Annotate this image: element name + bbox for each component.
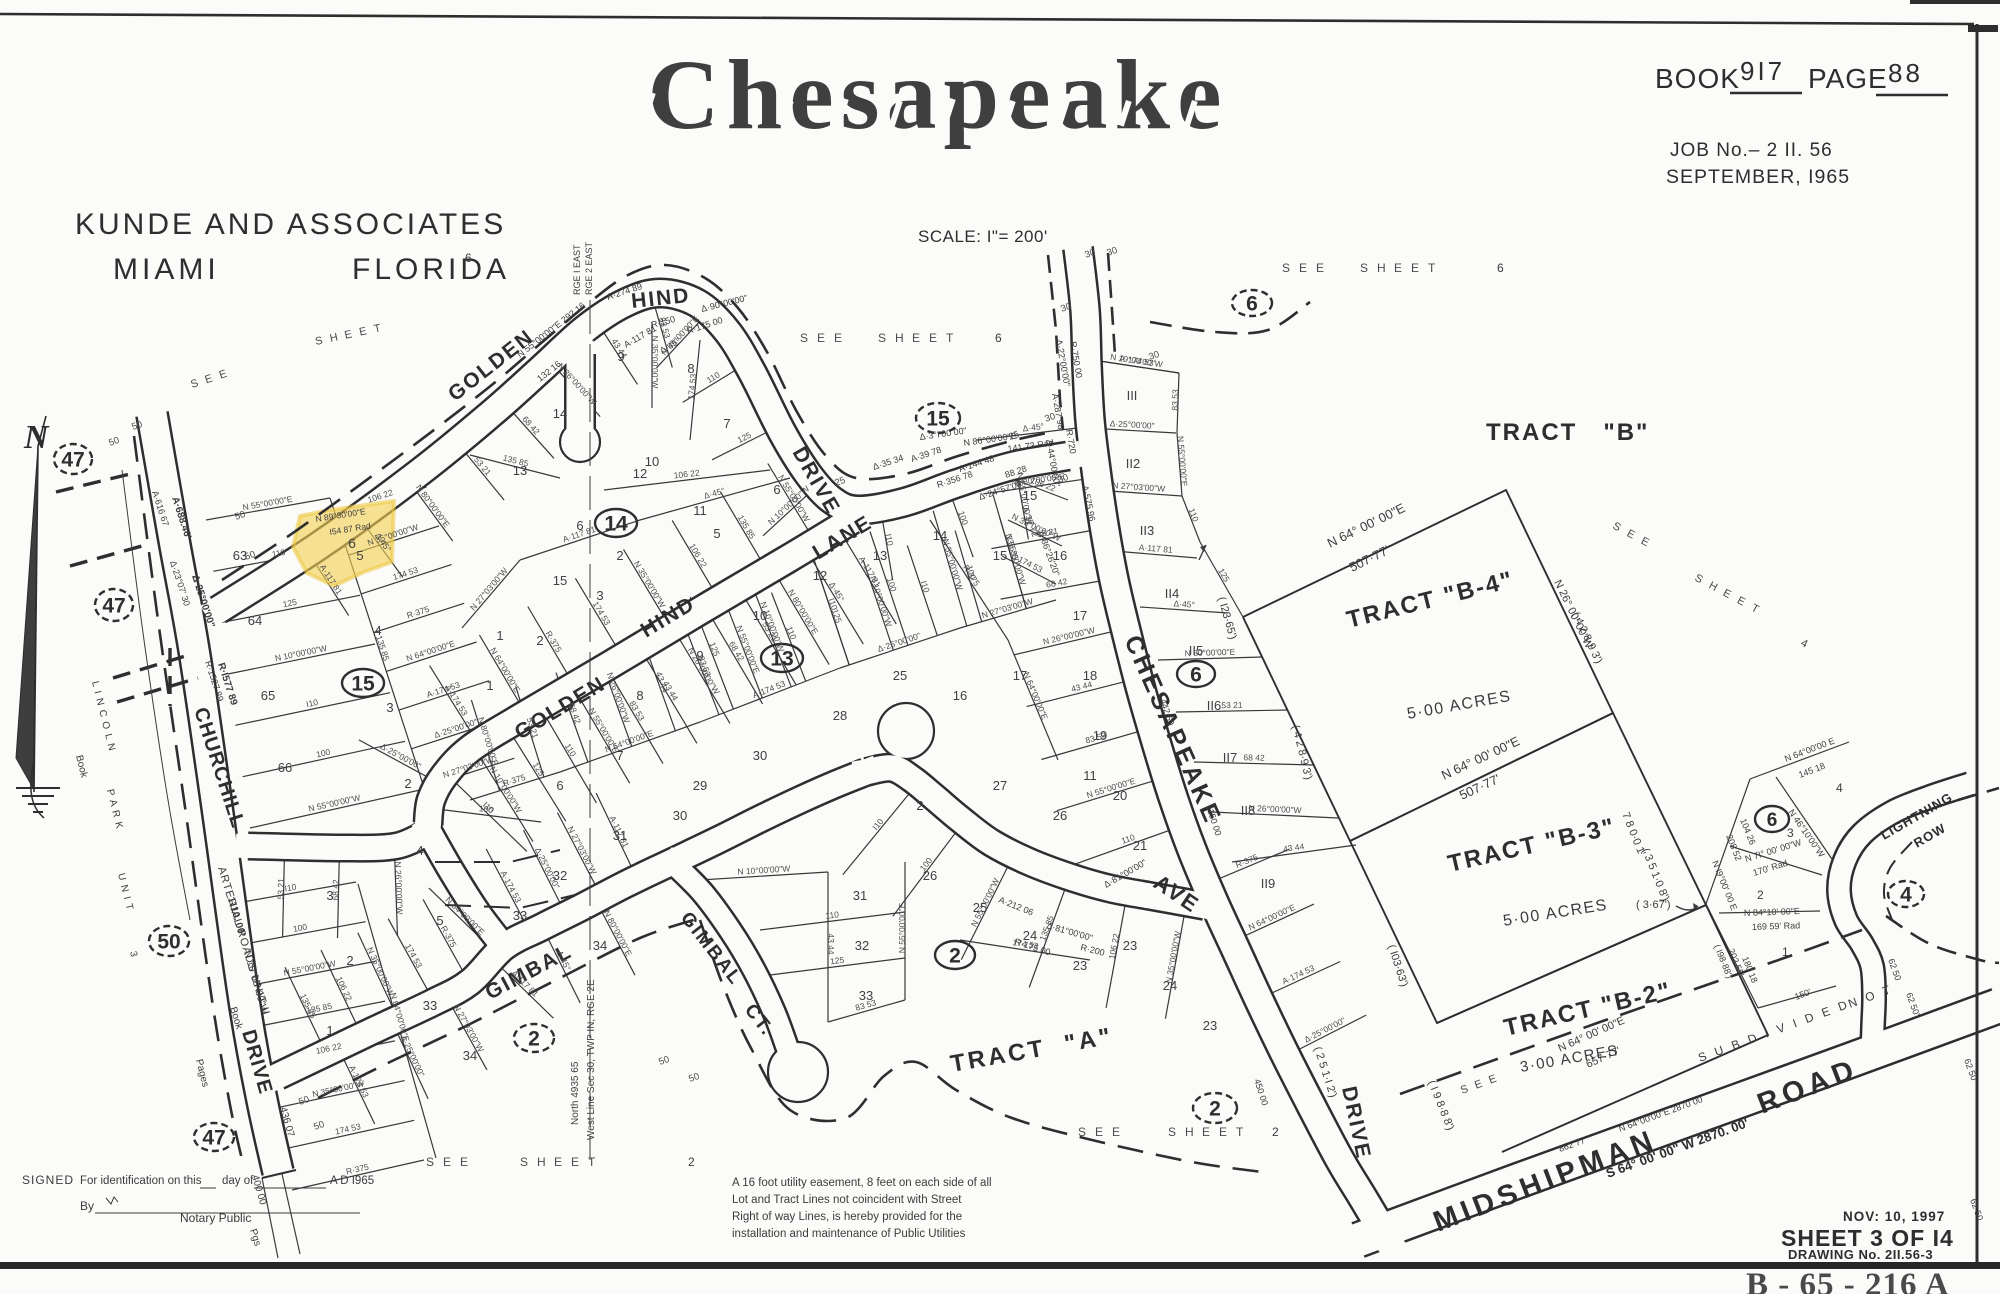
svg-text:34: 34 (463, 1048, 477, 1063)
svg-text:2: 2 (346, 953, 353, 968)
svg-text:15: 15 (1023, 488, 1037, 503)
svg-text:Lot and Tract Lines not c: Lot and Tract Lines not coincident with … (732, 1194, 962, 1206)
svg-text:RGE 2 EAST: RGE 2 EAST (584, 241, 594, 295)
svg-text:For identification on this: For identification on this (80, 1175, 202, 1187)
svg-text:II2: II2 (1126, 456, 1140, 471)
svg-text:Right of way Lines, is he: Right of way Lines, is hereby provided f… (732, 1211, 962, 1223)
svg-text:II9: II9 (1261, 876, 1275, 891)
svg-text:29: 29 (693, 778, 707, 793)
svg-text:3: 3 (326, 888, 333, 903)
svg-text:E: E (1112, 1125, 1120, 1139)
svg-text:6: 6 (576, 518, 583, 533)
svg-text:23: 23 (1123, 938, 1137, 953)
svg-text:16: 16 (953, 688, 967, 703)
svg-text:6: 6 (556, 778, 563, 793)
svg-text:SEPTEMBER, I965: SEPTEMBER, I965 (1666, 166, 1850, 188)
svg-text:H: H (895, 331, 904, 345)
svg-text:Chesapeake: Chesapeake (647, 39, 1228, 150)
svg-text:64: 64 (248, 613, 262, 628)
svg-text:E: E (817, 331, 825, 345)
svg-text:14: 14 (604, 513, 628, 536)
svg-text:E: E (912, 331, 920, 345)
svg-text:KUNDE AND ASSOCIATES: KUNDE AND ASSOCIATES (75, 208, 506, 241)
svg-text:2: 2 (1209, 1098, 1221, 1121)
svg-text:32: 32 (855, 938, 869, 953)
svg-text:DRAWING No. 2II.56-3: DRAWING No. 2II.56-3 (1788, 1247, 1933, 1262)
svg-text:1: 1 (486, 678, 493, 693)
svg-text:1: 1 (326, 1023, 333, 1038)
svg-text:B - 65 - 216 A: B - 65 - 216 A (1746, 1267, 1950, 1294)
svg-text:T: T (588, 1155, 596, 1169)
svg-text:34: 34 (593, 938, 607, 953)
svg-text:JOB No.– 2 II. 56: JOB No.– 2 II. 56 (1670, 140, 1833, 161)
svg-text:6: 6 (1497, 261, 1504, 275)
svg-text:T: T (1428, 261, 1436, 275)
svg-text:1: 1 (496, 628, 503, 643)
svg-text:4: 4 (1836, 781, 1843, 795)
svg-text:6: 6 (1246, 293, 1258, 316)
svg-text:18: 18 (1083, 668, 1097, 683)
svg-text:6: 6 (348, 535, 356, 551)
svg-text:RGE I EAST: RGE I EAST (572, 244, 582, 295)
svg-text:47: 47 (202, 1127, 225, 1150)
svg-text:N 84°10' 00"E: N 84°10' 00"E (1744, 906, 1800, 918)
svg-text:E: E (1394, 261, 1402, 275)
svg-text:19: 19 (1093, 728, 1107, 743)
svg-text:17: 17 (1073, 608, 1087, 623)
svg-text:S: S (1168, 1125, 1176, 1139)
svg-text:15: 15 (553, 573, 567, 588)
svg-text:7: 7 (723, 416, 730, 431)
svg-text:11: 11 (1083, 768, 1097, 783)
svg-text:MIAMI: MIAMI (113, 253, 220, 286)
svg-text:T: T (1236, 1125, 1244, 1139)
svg-text:20: 20 (1113, 788, 1127, 803)
svg-text:30: 30 (673, 808, 687, 823)
svg-text:E: E (1411, 261, 1419, 275)
svg-text:66: 66 (278, 760, 292, 775)
svg-text:H: H (1377, 261, 1386, 275)
svg-text:33: 33 (423, 998, 437, 1013)
svg-text:E: E (929, 331, 937, 345)
svg-text:A 16 foot utility easement: A 16 foot utility easement, 8 feet on ea… (732, 1177, 992, 1189)
svg-text:By: By (80, 1199, 94, 1213)
svg-text:15: 15 (926, 408, 950, 431)
svg-text:E: E (1219, 1125, 1227, 1139)
svg-text:I10: I10 (284, 882, 298, 894)
svg-text:14: 14 (933, 528, 947, 543)
svg-text:N 35°00'00"W: N 35°00'00"W (650, 336, 660, 389)
svg-text:N 55°00'00"E: N 55°00'00"E (897, 902, 907, 953)
svg-text:2: 2 (949, 945, 961, 968)
svg-text:2: 2 (688, 1155, 695, 1169)
svg-text:FLORIDA: FLORIDA (352, 253, 510, 286)
svg-text:SIGNED: SIGNED (22, 1173, 74, 1187)
svg-text:30: 30 (753, 748, 767, 763)
svg-text:2: 2 (528, 1028, 540, 1051)
svg-text:26: 26 (923, 868, 937, 883)
svg-text:installation and maintenance: installation and maintenance of Public U… (732, 1228, 966, 1240)
svg-text:17: 17 (1013, 668, 1027, 683)
svg-text:BOOK: BOOK (1655, 63, 1740, 94)
svg-text:II7: II7 (1223, 750, 1237, 765)
svg-text:6: 6 (1767, 810, 1778, 831)
svg-text:S: S (426, 1155, 434, 1169)
svg-text:2: 2 (536, 633, 543, 648)
svg-text:1: 1 (1782, 945, 1789, 959)
svg-text:II3: II3 (1140, 523, 1154, 538)
svg-text:2: 2 (916, 798, 923, 813)
svg-text:( 3·67'): ( 3·67') (1636, 899, 1671, 911)
svg-text:4: 4 (1900, 884, 1912, 907)
svg-text:N: N (23, 419, 50, 456)
svg-text:E: E (1095, 1125, 1103, 1139)
svg-text:32: 32 (553, 868, 567, 883)
svg-text:3: 3 (1787, 826, 1794, 840)
svg-text:8: 8 (687, 361, 694, 376)
svg-text:8: 8 (636, 688, 643, 703)
svg-text:PAGE: PAGE (1808, 63, 1888, 94)
svg-text:5: 5 (436, 913, 443, 928)
svg-text:3: 3 (596, 588, 603, 603)
svg-text:Notary Public: Notary Public (180, 1211, 251, 1225)
svg-text:N 26°00'00"W: N 26°00'00"W (393, 861, 405, 914)
svg-text:125: 125 (829, 955, 845, 967)
svg-text:33: 33 (513, 908, 527, 923)
svg-text:3: 3 (386, 700, 393, 715)
svg-text:4: 4 (374, 623, 381, 638)
svg-text:24: 24 (1163, 978, 1177, 993)
svg-text:12: 12 (813, 568, 827, 583)
svg-text:II6: II6 (1207, 698, 1221, 713)
svg-text:68 42: 68 42 (1243, 752, 1265, 763)
svg-text:E: E (443, 1155, 451, 1169)
svg-text:110: 110 (825, 909, 840, 921)
svg-text:day of: day of (222, 1175, 254, 1187)
svg-text:13: 13 (513, 463, 527, 478)
svg-text:T: T (946, 331, 954, 345)
svg-text:5: 5 (713, 526, 720, 541)
svg-text:16: 16 (1053, 548, 1067, 563)
svg-text:4: 4 (416, 843, 423, 858)
svg-text:E: E (571, 1155, 579, 1169)
svg-text:S: S (800, 331, 808, 345)
svg-text:S: S (1282, 261, 1290, 275)
svg-text:North 4935 65: North 4935 65 (570, 1061, 581, 1125)
svg-text:31: 31 (613, 828, 627, 843)
svg-text:E: E (1202, 1125, 1210, 1139)
svg-text:NOV: 10, 1997: NOV: 10, 1997 (1843, 1209, 1945, 1224)
svg-text:33: 33 (859, 988, 873, 1003)
svg-text:53 21: 53 21 (1221, 700, 1243, 710)
svg-text:E: E (460, 1155, 468, 1169)
svg-text:15: 15 (993, 548, 1007, 563)
svg-text:SCALE: I"= 200': SCALE: I"= 200' (918, 227, 1048, 246)
svg-text:6: 6 (1190, 664, 1202, 687)
svg-text:31: 31 (853, 888, 867, 903)
svg-text:West Line Sec 30, TWP IN,: West Line Sec 30, TWP IN, RGE 2E (586, 979, 597, 1140)
svg-text:II8: II8 (1241, 803, 1255, 818)
svg-text:E: E (1316, 261, 1324, 275)
svg-text:S: S (1078, 1125, 1086, 1139)
svg-text:H: H (537, 1155, 546, 1169)
svg-text:H: H (1185, 1125, 1194, 1139)
svg-text:7: 7 (616, 748, 623, 763)
svg-text:S: S (1360, 261, 1368, 275)
svg-text:I10: I10 (883, 533, 895, 547)
svg-text:A D I965: A D I965 (330, 1175, 374, 1187)
svg-text:E: E (1299, 261, 1307, 275)
svg-text:9: 9 (617, 349, 624, 364)
svg-text:10: 10 (753, 608, 767, 623)
svg-text:47: 47 (102, 595, 125, 618)
svg-text:65: 65 (261, 688, 275, 703)
svg-text:24: 24 (1023, 928, 1037, 943)
svg-text:53 21: 53 21 (275, 878, 285, 900)
svg-text:II4: II4 (1165, 586, 1179, 601)
svg-text:21: 21 (1133, 838, 1147, 853)
svg-text:83 53: 83 53 (1170, 389, 1181, 411)
svg-text:2: 2 (404, 776, 411, 791)
svg-text:25: 25 (893, 668, 907, 683)
svg-text:23: 23 (1073, 958, 1087, 973)
svg-text:6: 6 (465, 251, 472, 265)
svg-text:2: 2 (1757, 888, 1764, 902)
svg-text:III: III (1127, 388, 1138, 403)
svg-text:11: 11 (693, 503, 707, 518)
svg-text:43 44: 43 44 (826, 933, 836, 955)
svg-text:88: 88 (1888, 58, 1923, 88)
svg-text:E: E (834, 331, 842, 345)
svg-text:47: 47 (61, 449, 84, 472)
svg-text:5: 5 (356, 548, 363, 563)
svg-text:S: S (520, 1155, 528, 1169)
svg-text:15: 15 (351, 673, 375, 696)
svg-text:28: 28 (833, 708, 847, 723)
svg-text:13: 13 (873, 548, 887, 563)
svg-text:6: 6 (773, 482, 780, 497)
svg-text:23: 23 (1203, 1018, 1217, 1033)
svg-text:12: 12 (633, 466, 647, 481)
svg-text:II5: II5 (1189, 643, 1203, 658)
svg-text:9: 9 (696, 648, 703, 663)
svg-text:27: 27 (993, 778, 1007, 793)
svg-text:25: 25 (973, 900, 987, 915)
svg-text:2: 2 (1272, 1125, 1279, 1139)
svg-text:100: 100 (478, 803, 494, 815)
svg-text:26: 26 (1053, 808, 1067, 823)
svg-text:169 59' Rad: 169 59' Rad (1752, 920, 1801, 932)
svg-text:14: 14 (553, 406, 567, 421)
svg-text:2: 2 (616, 548, 623, 563)
svg-text:6: 6 (995, 331, 1002, 345)
svg-text:S: S (878, 331, 886, 345)
svg-text:9I7: 9I7 (1740, 56, 1785, 86)
svg-text:50: 50 (157, 931, 180, 954)
svg-text:E: E (554, 1155, 562, 1169)
svg-text:TRACT "B": TRACT "B" (1486, 419, 1649, 446)
